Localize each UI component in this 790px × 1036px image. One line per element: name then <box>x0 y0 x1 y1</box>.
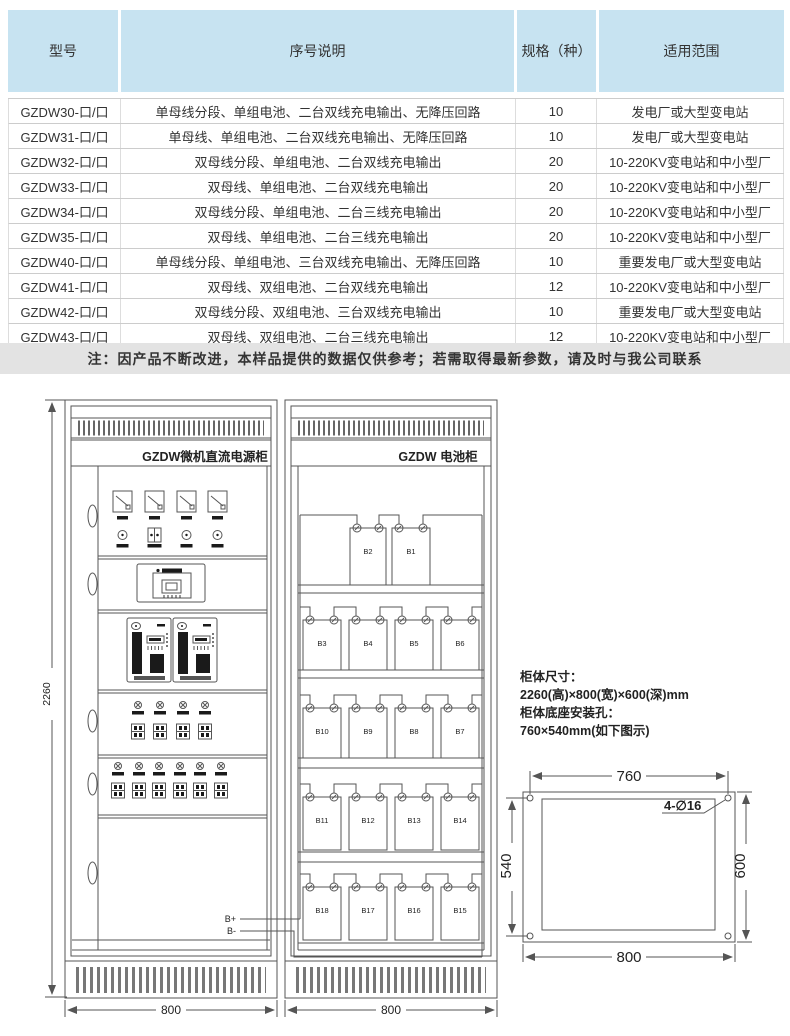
dimension-right-800: 800 <box>285 1000 497 1017</box>
indicator-breaker-column <box>132 702 145 740</box>
spec-text-block: 柜体尺寸： 2260(高)×800(宽)×600(深)mm 柜体底座安装孔： 7… <box>519 669 689 738</box>
table-cell: 发电厂或大型变电站 <box>597 124 784 148</box>
battery-label: B17 <box>361 906 374 915</box>
battery-jumper-wire <box>426 874 448 883</box>
table-cell: GZDW40-口/口 <box>9 249 121 273</box>
battery-label: B3 <box>317 639 326 648</box>
holes-callout: 4-∅16 <box>662 798 725 813</box>
control-knob-icon[interactable] <box>181 531 193 548</box>
table-cell: 重要发电厂或大型变电站 <box>597 299 784 323</box>
battery-jumper-wire <box>380 874 402 883</box>
battery-jumper-wire <box>380 607 402 616</box>
battery: B7 <box>441 704 479 758</box>
svg-text:800: 800 <box>161 1003 181 1017</box>
battery: B16 <box>395 883 433 940</box>
table-cell: 双母线分段、单组电池、二台三线充电输出 <box>121 199 516 223</box>
battery: B10 <box>303 704 341 758</box>
shelf-feed-wire <box>472 695 482 704</box>
battery: B15 <box>441 883 479 940</box>
battery: B12 <box>349 793 387 850</box>
analog-meter-icon <box>113 491 132 520</box>
battery-label: B5 <box>409 639 418 648</box>
battery-label: B2 <box>363 547 372 556</box>
shelf-feed-wire <box>300 784 310 793</box>
table-cell: GZDW34-口/口 <box>9 199 121 223</box>
battery: B11 <box>303 793 341 850</box>
dimension-2260: 2260 <box>41 400 67 997</box>
door-handle-icon[interactable] <box>88 573 97 595</box>
battery: B3 <box>303 616 341 670</box>
table-cell: 重要发电厂或大型变电站 <box>597 249 784 273</box>
power-cabinet: GZDW微机直流电源柜 <box>65 400 277 998</box>
battery-label: B14 <box>453 816 466 825</box>
indicator-breaker-column <box>154 702 167 740</box>
table-cell: 10 <box>516 299 597 323</box>
charger-module <box>173 618 217 682</box>
analog-meter-icon <box>208 491 227 520</box>
table-cell: 双母线、双组电池、二台双线充电输出 <box>121 274 516 298</box>
battery: B18 <box>303 883 341 940</box>
table-cell: GZDW33-口/口 <box>9 174 121 198</box>
table-cell: GZDW31-口/口 <box>9 124 121 148</box>
battery: B1 <box>392 524 430 585</box>
battery-jumper-wire <box>334 607 356 616</box>
table-cell: 双母线、单组电池、二台双线充电输出 <box>121 174 516 198</box>
table-cell: 20 <box>516 174 597 198</box>
door-handle-icon[interactable] <box>88 773 97 795</box>
table-cell: 10 <box>516 249 597 273</box>
indicator-breaker-column <box>174 763 187 799</box>
battery-label: B11 <box>316 816 329 825</box>
col-header-model: 型号 <box>8 10 118 92</box>
mounting-hole-icon <box>725 933 731 939</box>
battery-label: B9 <box>363 727 372 736</box>
shelf-feed-wire <box>300 515 357 524</box>
battery-label: B1 <box>406 547 415 556</box>
indicator-breaker-column <box>215 763 228 799</box>
monitor-panel <box>137 564 205 602</box>
shelf-feed-wire <box>423 515 482 524</box>
table-cell: 10 <box>516 99 597 123</box>
battery-jumper-wire <box>380 784 402 793</box>
cabinet-diagram: GZDW微机直流电源柜 <box>0 390 790 1036</box>
holes-title: 柜体底座安装孔： <box>519 705 620 720</box>
battery-jumper-wire <box>334 874 356 883</box>
battery-label: B12 <box>361 816 374 825</box>
battery: B2 <box>350 524 386 585</box>
spec-table-header: 型号 序号说明 规格（种） 适用范围 <box>8 10 784 92</box>
battery-jumper-wire <box>426 607 448 616</box>
battery-label: B18 <box>315 906 328 915</box>
battery-jumper-wire <box>379 515 399 524</box>
battery-label: B15 <box>453 906 466 915</box>
battery-label: B16 <box>407 906 420 915</box>
col-header-spec: 规格（种） <box>517 10 596 92</box>
indicator-breaker-column <box>133 763 146 799</box>
battery-jumper-wire <box>380 695 402 704</box>
indicator-breaker-column <box>177 702 190 740</box>
battery-jumper-wire <box>426 695 448 704</box>
battery-cabinet: GZDW 电池柜 B2B1B3B4B5B6B10B9B8B7B11B12B13B… <box>240 400 497 998</box>
cabinet-drawing-svg: GZDW微机直流电源柜 <box>0 390 790 1036</box>
table-cell: 10-220KV变电站和中小型厂 <box>597 224 784 248</box>
indicator-breaker-column <box>194 763 207 799</box>
table-row: GZDW30-口/口单母线分段、单组电池、二台双线充电输出、无降压回路10发电厂… <box>8 99 784 124</box>
indicator-breaker-column <box>112 763 125 799</box>
shelf-feed-wire <box>472 607 482 616</box>
dimension-760: 760 <box>530 766 728 794</box>
analog-meter-icon <box>177 491 196 520</box>
charger-module <box>127 618 171 682</box>
svg-text:540: 540 <box>498 853 515 878</box>
table-cell: GZDW35-口/口 <box>9 224 121 248</box>
table-cell: 12 <box>516 274 597 298</box>
table-row: GZDW34-口/口双母线分段、单组电池、二台三线充电输出2010-220KV变… <box>8 199 784 224</box>
note-bar: 注：因产品不断改进，本样品提供的数据仅供参考；若需取得最新参数，请及时与我公司联… <box>0 343 790 374</box>
svg-text:760: 760 <box>616 768 641 785</box>
table-row: GZDW42-口/口双母线分段、双组电池、三台双线充电输出10重要发电厂或大型变… <box>8 299 784 324</box>
door-handle-icon[interactable] <box>88 505 97 527</box>
table-cell: 双母线、单组电池、二台三线充电输出 <box>121 224 516 248</box>
col-header-desc: 序号说明 <box>121 10 514 92</box>
indicator-breaker-column <box>199 702 212 740</box>
table-cell: 20 <box>516 149 597 173</box>
mounting-hole-icon <box>725 795 731 801</box>
battery-label: B7 <box>455 727 464 736</box>
selector-switch-icon[interactable] <box>148 528 162 548</box>
dimension-left-800: 800 <box>65 1000 277 1017</box>
indicator-breaker-column <box>153 763 166 799</box>
table-cell: 双母线分段、单组电池、二台双线充电输出 <box>121 149 516 173</box>
table-row: GZDW40-口/口单母线分段、单组电池、三台双线充电输出、无降压回路10重要发… <box>8 249 784 274</box>
battery: B4 <box>349 616 387 670</box>
door-handle-icon[interactable] <box>88 710 97 732</box>
shelf-feed-wire <box>300 695 310 704</box>
size-title: 柜体尺寸： <box>519 669 583 684</box>
battery-label: B4 <box>363 639 372 648</box>
spec-table-body: GZDW30-口/口单母线分段、单组电池、二台双线充电输出、无降压回路10发电厂… <box>8 98 784 349</box>
table-cell: 单母线、单组电池、二台双线充电输出、无降压回路 <box>121 124 516 148</box>
shelf-feed-wire <box>300 607 310 616</box>
bus-positive-label: B+ <box>225 914 236 924</box>
svg-text:4-∅16: 4-∅16 <box>664 798 701 813</box>
table-cell: GZDW32-口/口 <box>9 149 121 173</box>
analog-meter-icon <box>145 491 164 520</box>
table-cell: GZDW41-口/口 <box>9 274 121 298</box>
dimension-plan-800: 800 <box>523 944 735 966</box>
catalog-page: 型号 序号说明 规格（种） 适用范围 GZDW30-口/口单母线分段、单组电池、… <box>0 0 790 1036</box>
table-cell: 单母线分段、单组电池、二台双线充电输出、无降压回路 <box>121 99 516 123</box>
base-mounting-plan: 760 540 600 <box>498 766 754 966</box>
bus-negative-label: B- <box>227 926 236 936</box>
shelf-feed-wire <box>472 784 482 793</box>
battery-label: B8 <box>409 727 418 736</box>
battery-label: B13 <box>407 816 420 825</box>
table-cell: 10-220KV变电站和中小型厂 <box>597 149 784 173</box>
battery-jumper-wire <box>426 784 448 793</box>
battery: B17 <box>349 883 387 940</box>
svg-text:2260: 2260 <box>41 682 53 706</box>
battery: B8 <box>395 704 433 758</box>
table-cell: 单母线分段、单组电池、三台双线充电输出、无降压回路 <box>121 249 516 273</box>
shelf-feed-wire <box>472 874 482 883</box>
control-knob-icon[interactable] <box>212 531 224 548</box>
col-header-range: 适用范围 <box>599 10 784 92</box>
table-cell: 20 <box>516 199 597 223</box>
table-cell: 10-220KV变电站和中小型厂 <box>597 274 784 298</box>
battery: B13 <box>395 793 433 850</box>
table-cell: 10 <box>516 124 597 148</box>
battery-jumper-wire <box>334 695 356 704</box>
battery: B5 <box>395 616 433 670</box>
holes-value: 760×540mm(如下图示) <box>520 723 650 738</box>
svg-text:800: 800 <box>381 1003 401 1017</box>
svg-text:800: 800 <box>616 949 641 966</box>
table-row: GZDW41-口/口双母线、双组电池、二台双线充电输出1210-220KV变电站… <box>8 274 784 299</box>
size-value: 2260(高)×800(宽)×600(深)mm <box>520 687 689 702</box>
battery-cabinet-title: GZDW 电池柜 <box>398 449 478 464</box>
shelf-feed-wire <box>300 874 310 883</box>
table-cell: 双母线分段、双组电池、三台双线充电输出 <box>121 299 516 323</box>
table-cell: 10-220KV变电站和中小型厂 <box>597 199 784 223</box>
battery-jumper-wire <box>334 784 356 793</box>
table-cell: GZDW42-口/口 <box>9 299 121 323</box>
battery: B6 <box>441 616 479 670</box>
power-cabinet-title: GZDW微机直流电源柜 <box>142 449 268 464</box>
table-cell: 20 <box>516 224 597 248</box>
svg-text:600: 600 <box>732 853 749 878</box>
battery-label: B6 <box>455 639 464 648</box>
table-row: GZDW31-口/口单母线、单组电池、二台双线充电输出、无降压回路10发电厂或大… <box>8 124 784 149</box>
battery-label: B10 <box>315 727 328 736</box>
battery: B14 <box>441 793 479 850</box>
spec-table: 型号 序号说明 规格（种） 适用范围 GZDW30-口/口单母线分段、单组电池、… <box>8 10 784 349</box>
battery: B9 <box>349 704 387 758</box>
table-row: GZDW33-口/口双母线、单组电池、二台双线充电输出2010-220KV变电站… <box>8 174 784 199</box>
door-handle-icon[interactable] <box>88 862 97 884</box>
table-cell: GZDW30-口/口 <box>9 99 121 123</box>
table-row: GZDW35-口/口双母线、单组电池、二台三线充电输出2010-220KV变电站… <box>8 224 784 249</box>
table-cell: 10-220KV变电站和中小型厂 <box>597 174 784 198</box>
control-knob-icon[interactable] <box>117 531 129 548</box>
table-row: GZDW32-口/口双母线分段、单组电池、二台双线充电输出2010-220KV变… <box>8 149 784 174</box>
table-cell: 发电厂或大型变电站 <box>597 99 784 123</box>
